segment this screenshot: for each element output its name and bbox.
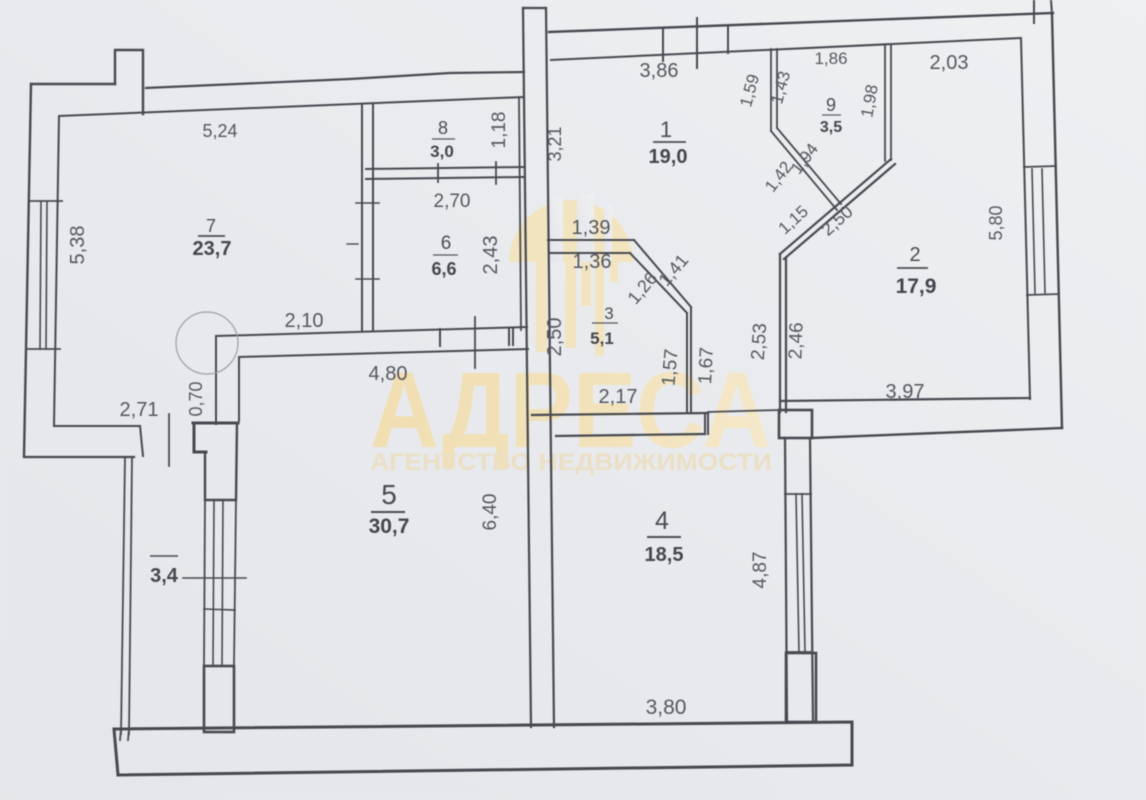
svg-text:1,57: 1,57 (658, 348, 682, 387)
svg-text:3,5: 3,5 (820, 119, 842, 136)
svg-text:9: 9 (826, 95, 836, 115)
svg-text:2,71: 2,71 (120, 399, 159, 421)
svg-text:8: 8 (438, 118, 448, 138)
svg-text:17,9: 17,9 (896, 275, 937, 298)
svg-text:23,7: 23,7 (193, 238, 232, 260)
svg-text:2,53: 2,53 (748, 322, 772, 360)
svg-text:3,80: 3,80 (646, 696, 687, 719)
svg-text:2,70: 2,70 (434, 191, 471, 212)
svg-text:3,0: 3,0 (430, 142, 454, 161)
svg-text:18,5: 18,5 (645, 544, 684, 566)
svg-text:1,67: 1,67 (695, 347, 718, 385)
svg-text:3,21: 3,21 (545, 126, 565, 161)
svg-text:3,97: 3,97 (886, 381, 925, 403)
svg-text:5: 5 (381, 479, 397, 510)
svg-text:5,38: 5,38 (67, 226, 89, 265)
svg-text:2,50: 2,50 (544, 318, 566, 357)
svg-text:0,70: 0,70 (186, 381, 206, 416)
svg-text:2: 2 (909, 244, 920, 266)
svg-text:3,4: 3,4 (150, 565, 179, 587)
svg-text:7: 7 (206, 216, 216, 236)
svg-text:АГЕНТСТВО НЕДВИЖИМОСТИ: АГЕНТСТВО НЕДВИЖИМОСТИ (370, 449, 772, 476)
svg-text:4,80: 4,80 (369, 363, 408, 385)
svg-text:6,40: 6,40 (480, 494, 501, 531)
svg-text:1,39: 1,39 (572, 217, 611, 239)
svg-text:5,80: 5,80 (986, 205, 1006, 240)
svg-text:1,18: 1,18 (489, 112, 510, 149)
svg-text:2,46: 2,46 (785, 322, 807, 360)
svg-text:19,0: 19,0 (649, 146, 688, 168)
svg-text:2,10: 2,10 (285, 310, 324, 332)
svg-text:6: 6 (441, 233, 452, 254)
svg-text:1,36: 1,36 (573, 251, 612, 273)
svg-text:1: 1 (660, 117, 672, 142)
svg-text:6,6: 6,6 (431, 259, 456, 279)
svg-text:4,87: 4,87 (750, 552, 771, 589)
svg-text:1,86: 1,86 (814, 49, 847, 68)
svg-text:3,86: 3,86 (640, 60, 679, 82)
svg-text:3: 3 (604, 304, 613, 323)
svg-text:5,24: 5,24 (202, 121, 237, 141)
svg-text:2,17: 2,17 (599, 386, 638, 408)
svg-text:2,43: 2,43 (480, 236, 502, 275)
svg-text:5,1: 5,1 (590, 329, 614, 348)
svg-text:30,7: 30,7 (369, 515, 410, 538)
svg-text:4: 4 (655, 507, 669, 535)
svg-text:2,03: 2,03 (930, 52, 969, 74)
